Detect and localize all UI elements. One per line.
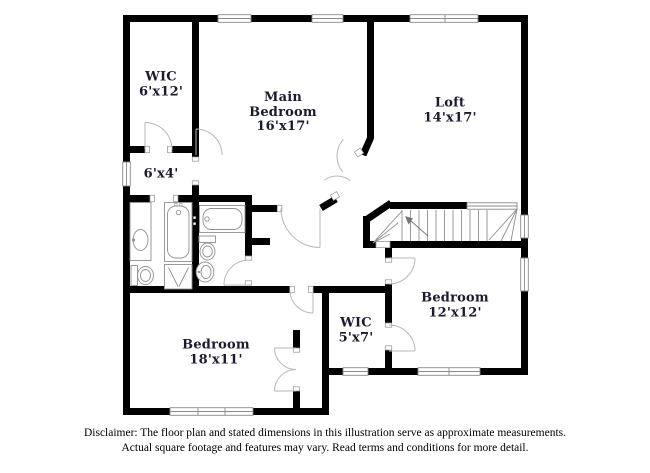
stair-treads [402, 210, 487, 241]
room-dimensions: 12'x12' [421, 306, 489, 321]
window [343, 368, 368, 376]
room-name: WIC [339, 316, 374, 331]
room-label-wic-upper: WIC 6'x12' [139, 70, 183, 99]
door-arc [196, 129, 222, 155]
disclaimer-line-1: Disclaimer: The floor plan and stated di… [0, 426, 650, 441]
bathtub [200, 206, 246, 233]
door-arc [145, 123, 172, 150]
staircase [373, 209, 517, 243]
room-dimensions: 18'x11' [182, 353, 250, 368]
room-dimensions: 5'x7' [339, 331, 374, 346]
window [123, 162, 131, 186]
door-arc [389, 325, 415, 351]
door-arc [324, 176, 350, 181]
room-label-loft: Loft 14'x17' [423, 96, 476, 125]
window [218, 15, 251, 23]
shower [165, 265, 193, 290]
window [521, 215, 529, 238]
room-name: Main Bedroom [244, 91, 322, 120]
room-dimensions: 6'x12' [139, 85, 183, 100]
room-dimensions: 14'x17' [423, 111, 476, 126]
room-label-bedroom-right: Bedroom 12'x12' [421, 291, 489, 320]
toilet [131, 266, 154, 286]
stair-winders [373, 209, 517, 243]
room-dimensions: 16'x17' [244, 120, 322, 135]
bathtub [165, 203, 193, 262]
window [410, 15, 478, 23]
door-arc [290, 290, 313, 313]
room-label-hall: 6'x4' [144, 168, 179, 183]
floor-plan: WIC 6'x12' Main Bedroom 16'x17' Loft 14'… [0, 0, 650, 473]
window [418, 368, 480, 376]
door-arc [275, 370, 297, 392]
stair-arrowhead [405, 216, 413, 225]
room-label-bedroom-lower: Bedroom 18'x11' [182, 338, 250, 367]
room-label-wic-lower: WIC 5'x7' [339, 316, 374, 345]
door-arc [389, 258, 415, 284]
window [521, 258, 529, 291]
window [170, 408, 253, 416]
door-arc [337, 139, 343, 172]
floor-plan-drawing [0, 0, 650, 473]
stair-railing [467, 203, 517, 209]
vanity-sink [130, 203, 151, 261]
disclaimer-line-2: Actual square footage and features may v… [0, 441, 650, 456]
toilet [199, 236, 216, 260]
room-name: Bedroom [421, 291, 489, 306]
room-label-main-bedroom: Main Bedroom 16'x17' [244, 91, 322, 135]
stair-direction-arrow [411, 221, 428, 236]
door-arc [281, 209, 320, 248]
pedestal-sink [196, 262, 214, 282]
window [312, 15, 343, 23]
door-arc [275, 348, 297, 370]
room-name: Loft [423, 96, 476, 111]
room-name: Bedroom [182, 338, 250, 353]
room-dimensions: 6'x4' [144, 168, 179, 183]
room-name: WIC [139, 70, 183, 85]
bathroom-fixtures [130, 203, 245, 290]
disclaimer: Disclaimer: The floor plan and stated di… [0, 426, 650, 456]
